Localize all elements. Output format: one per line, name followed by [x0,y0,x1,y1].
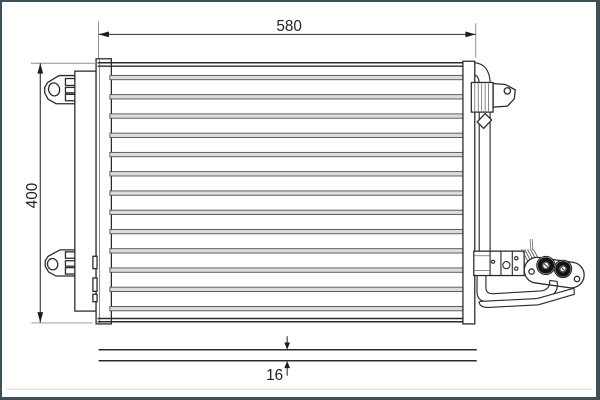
bracket-clip [65,94,74,100]
dimension-thickness-label: 16 [266,367,283,384]
bracket-clip [65,268,74,274]
dimension-width: 580 [99,18,476,59]
bracket-hole [504,88,510,94]
tank-clip [93,278,97,291]
tube-row [110,133,464,137]
flange-bolt-hole [529,269,534,274]
refrigerant-port-2 [554,260,571,277]
tube-row [110,229,464,233]
bracket-clip [65,79,74,86]
tube-row [110,210,464,214]
arrowhead-left-icon [99,32,109,38]
tube-row [110,114,464,118]
dimension-height-label: 400 [24,183,41,209]
fitting-block [474,251,524,275]
tube-row [110,172,464,176]
tank-clip [93,256,97,268]
pipe-clamp [471,82,493,112]
bracket-clip [65,87,74,92]
condenser-front-view [45,59,586,324]
arrowhead-down-icon [284,342,290,349]
condenser-core [98,61,464,322]
dimension-width-label: 580 [276,18,302,35]
left-side-plate [75,71,96,311]
tube-row [110,95,464,99]
tank-clip [93,294,97,301]
arrowhead-up-icon [284,361,290,368]
condenser-side-view [99,350,477,361]
mounting-bracket-top [45,76,75,104]
pipe-bracket [493,83,515,107]
tube-row [110,306,464,310]
tube-row [110,75,464,79]
flange-bolt-hole [574,276,579,281]
tube-row [110,287,464,291]
lower-pipe-band [479,288,574,307]
arrowhead-right-icon [465,32,475,38]
arrowhead-up-icon [37,63,43,73]
drawing-sheet: 580 400 [0,0,600,400]
tube-row [110,249,464,253]
left-header-tank [93,59,111,324]
tube-rows [110,75,464,310]
mounting-bracket-bottom [45,250,75,276]
tube-row [110,152,464,156]
tube-row [110,191,464,195]
refrigerant-port-1 [537,256,555,274]
bracket-clip [65,252,74,258]
condenser-technical-drawing: 580 400 [2,2,596,397]
tube-row [110,268,464,272]
bracket-clip [65,261,74,266]
arrowhead-down-icon [37,312,43,322]
